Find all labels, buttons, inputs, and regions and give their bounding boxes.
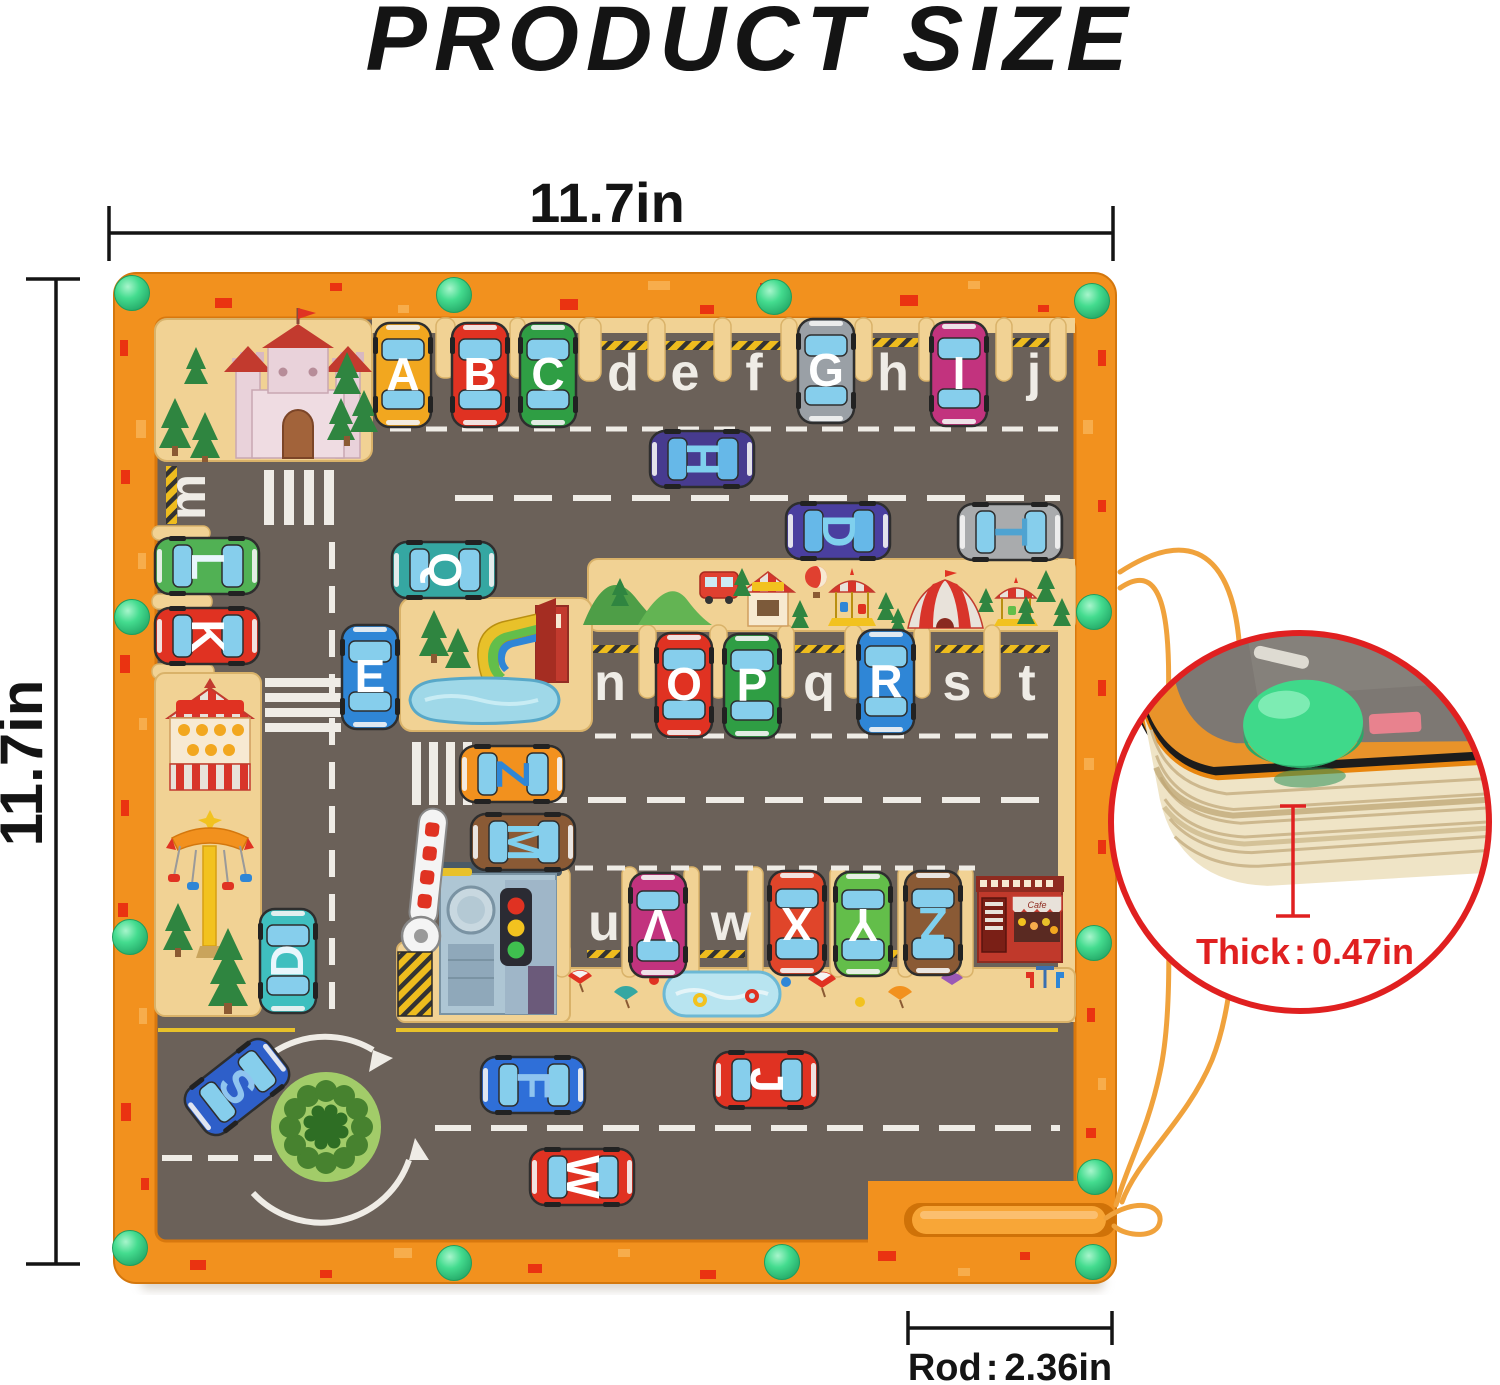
svg-text:J: J bbox=[741, 1067, 793, 1093]
svg-text:Z: Z bbox=[487, 760, 539, 788]
svg-text:I: I bbox=[953, 347, 966, 399]
svg-text:j: j bbox=[1026, 344, 1041, 402]
svg-text:M: M bbox=[498, 823, 550, 861]
svg-text:A: A bbox=[386, 348, 419, 400]
svg-text:D: D bbox=[261, 944, 313, 977]
svg-text:H: H bbox=[677, 442, 729, 475]
svg-text:Cafe: Cafe bbox=[1027, 900, 1046, 910]
svg-text:h: h bbox=[877, 344, 909, 402]
svg-text:G: G bbox=[808, 344, 844, 396]
svg-text:m: m bbox=[159, 474, 217, 520]
svg-text:s: s bbox=[943, 654, 972, 712]
svg-text:K: K bbox=[182, 619, 234, 652]
svg-text:Z: Z bbox=[919, 898, 947, 950]
svg-text:11.7in: 11.7in bbox=[529, 171, 685, 234]
svg-text:B: B bbox=[463, 348, 496, 400]
svg-text:u: u bbox=[588, 894, 620, 952]
svg-text:f: f bbox=[745, 344, 763, 402]
svg-text:Rod:2.36in: Rod:2.36in bbox=[908, 1347, 1112, 1385]
svg-text:L: L bbox=[182, 552, 234, 580]
svg-text:t: t bbox=[1018, 654, 1035, 712]
svg-text:D: D bbox=[813, 514, 865, 547]
svg-text:Thick:0.47in: Thick:0.47in bbox=[1196, 931, 1414, 972]
svg-text:11.7in: 11.7in bbox=[0, 680, 55, 847]
svg-text:F: F bbox=[508, 1071, 560, 1099]
svg-text:T: T bbox=[985, 518, 1037, 546]
svg-text:Y: Y bbox=[848, 899, 879, 951]
svg-text:W: W bbox=[557, 1155, 609, 1199]
svg-text:d: d bbox=[607, 344, 639, 402]
svg-text:PRODUCT SIZE: PRODUCT SIZE bbox=[366, 0, 1135, 90]
svg-text:w: w bbox=[710, 894, 752, 952]
svg-text:P: P bbox=[737, 659, 768, 711]
svg-text:C: C bbox=[531, 348, 564, 400]
svg-text:Q: Q bbox=[419, 552, 471, 588]
svg-text:E: E bbox=[355, 650, 386, 702]
svg-text:q: q bbox=[803, 654, 835, 712]
svg-text:V: V bbox=[642, 900, 673, 952]
svg-text:O: O bbox=[666, 658, 702, 710]
svg-text:R: R bbox=[869, 655, 902, 707]
svg-text:X: X bbox=[781, 898, 812, 950]
svg-text:n: n bbox=[594, 654, 626, 712]
svg-text:e: e bbox=[671, 344, 700, 402]
